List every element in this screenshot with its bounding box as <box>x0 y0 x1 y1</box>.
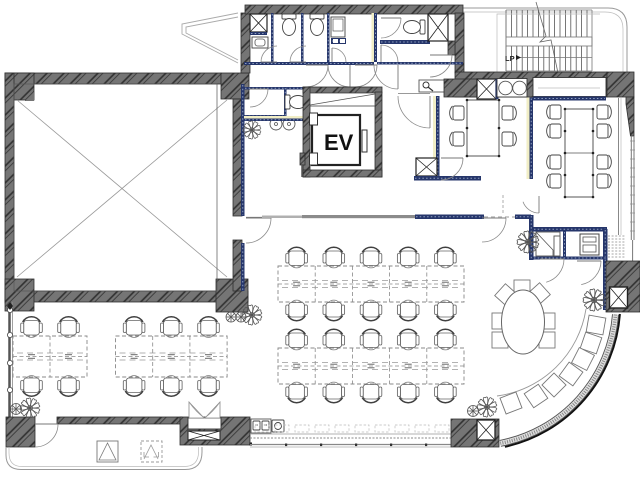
svg-text:LP: LP <box>505 54 515 63</box>
svg-text:EV: EV <box>324 130 354 155</box>
